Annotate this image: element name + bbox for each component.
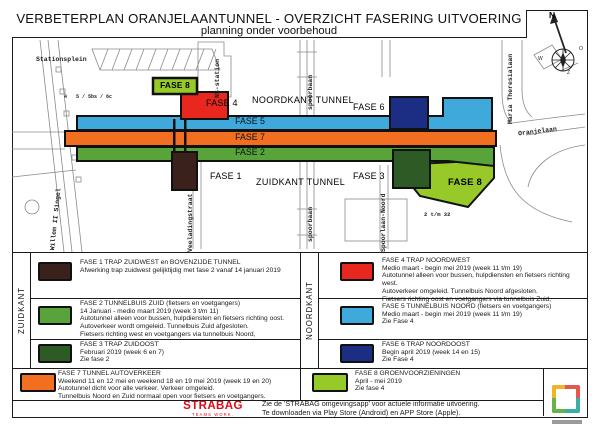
- legend-title-fase7: FASE 7 TUNNEL AUTOVERKEER: [58, 370, 298, 378]
- map-label-fase6: FASE 6: [353, 102, 385, 112]
- grid-line: [318, 252, 319, 368]
- legend-title-fase3: FASE 3 TRAP ZUIDOOST: [80, 341, 296, 349]
- strabag-logo: STRABAG TEAMS WORK.: [176, 401, 250, 417]
- legend-swatch-fase2: [38, 306, 72, 325]
- map-label-fase8-zuid: FASE 8: [448, 177, 482, 188]
- street-label-maria-theresialaan: Maria Theresialaan: [507, 54, 514, 124]
- map-label-fase7: FASE 7: [180, 132, 320, 142]
- scan-artifact-bar: [552, 420, 582, 424]
- legend-entry-fase5: FASE 5 TUNNELBUIS NOORD (fietsers en voe…: [382, 303, 584, 326]
- legend-title-fase6: FASE 6 TRAP NOORDOOST: [382, 341, 584, 349]
- legend-swatch-fase3: [38, 344, 72, 363]
- legend-entry-fase1: FASE 1 TRAP ZUIDWEST en BOVENZIJDE TUNNE…: [80, 259, 296, 274]
- page-title: VERBETERPLAN ORANJELAANTUNNEL - OVERZICH…: [12, 10, 526, 26]
- legend-desc-fase8: April - mei 2019 Zie fase 4: [355, 378, 540, 393]
- compass-west-label: W: [538, 56, 543, 62]
- legend-swatch-fase5: [340, 306, 374, 325]
- street-label-ns-station: NS-station: [214, 59, 221, 98]
- strabag-brand-name: STRABAG: [176, 401, 250, 412]
- grid-line: [300, 252, 301, 400]
- municipality-logo-icon: [552, 385, 580, 413]
- fase1-area: [172, 152, 197, 190]
- grid-line: [30, 252, 31, 368]
- legend-group-noordkant: NOORDKANT: [300, 252, 318, 368]
- legend-entry-fase6: FASE 6 TRAP NOORDOOST Begin april 2019 (…: [382, 341, 584, 364]
- page: VERBETERPLAN ORANJELAANTUNNEL - OVERZICH…: [0, 0, 600, 428]
- map-label-fase4: FASE 4: [206, 98, 238, 108]
- legend-desc-fase5: Medio maart - begin mei 2019 (week 11 t/…: [382, 311, 584, 326]
- legend-swatch-fase1: [38, 262, 72, 281]
- legend-entry-fase2: FASE 2 TUNNELBUIS ZUID (fietsers en voet…: [80, 300, 296, 339]
- street-label-veeladingstraat: Veeladingstraat: [187, 193, 194, 252]
- street-label-spoorlaan-noord: Spoorlaan-Noord: [380, 193, 387, 252]
- legend-swatch-fase6: [340, 344, 374, 363]
- grid-line: [12, 400, 543, 401]
- legend-title-fase8: FASE 8 GROENVOORZIENINGEN: [355, 370, 540, 378]
- grid-line: [30, 339, 300, 340]
- legend-group-zuidkant-label: ZUIDKANT: [17, 287, 26, 334]
- legend-entry-fase7: FASE 7 TUNNEL AUTOVERKEER Weekend 11 en …: [58, 370, 298, 401]
- legend-title-fase1: FASE 1 TRAP ZUIDWEST en BOVENZIJDE TUNNE…: [80, 259, 296, 267]
- tunnel-wall-line: [173, 119, 176, 152]
- logo-bracket-bottom-right: [565, 398, 580, 413]
- housenumber-label: 5 / 5bs / 6c: [76, 94, 112, 100]
- legend-desc-fase7: Weekend 11 en 12 mei en weekend 18 en 19…: [58, 378, 298, 401]
- legend-entry-fase3: FASE 3 TRAP ZUIDOOST Februari 2019 (week…: [80, 341, 296, 364]
- housenumber-label: 2 t/m 32: [424, 211, 450, 218]
- area-label-noordkant-tunnel: NOORDKANT TUNNEL: [252, 95, 354, 105]
- map-label-fase5: FASE 5: [180, 116, 320, 126]
- title-box: VERBETERPLAN ORANJELAANTUNNEL - OVERZICH…: [12, 10, 527, 38]
- legend-group-noordkant-label: NOORDKANT: [305, 281, 314, 340]
- legend-desc-fase1: Afwerking trap zuidwest gelijktijdig met…: [80, 267, 296, 275]
- legend-group-zuidkant: ZUIDKANT: [12, 252, 30, 368]
- compass-east-label: O: [579, 46, 583, 52]
- legend-desc-fase6: Begin april 2019 (week 14 en 15) Zie Fas…: [382, 349, 584, 364]
- map-label-fase3: FASE 3: [353, 171, 385, 181]
- legend-entry-fase4: FASE 4 TRAP NOORDWEST Medio maart - begi…: [382, 257, 584, 303]
- grid-line: [318, 339, 588, 340]
- legend-swatch-fase4: [340, 262, 374, 281]
- map-base-drawing: [12, 37, 588, 252]
- street-label-spoorbaan-zuid: spoorbaan: [307, 207, 314, 242]
- grid-line: [30, 298, 300, 299]
- strabag-brand-tagline: TEAMS WORK.: [176, 412, 250, 417]
- fase3-area: [393, 150, 430, 188]
- grid-line: [543, 368, 544, 416]
- legend-desc-fase2: 14 Januari - medio maart 2019 (week 3 t/…: [80, 308, 296, 339]
- area-label-zuidkant-tunnel: ZUIDKANT TUNNEL: [256, 177, 345, 187]
- legend-title-fase2: FASE 2 TUNNELBUIS ZUID (fietsers en voet…: [80, 300, 296, 308]
- housenumber-label: 4: [64, 94, 67, 100]
- fase6-area: [390, 97, 428, 129]
- legend-swatch-fase7: [20, 373, 56, 392]
- legend-title-fase5: FASE 5 TUNNELBUIS NOORD (fietsers en voe…: [382, 303, 584, 311]
- compass-north-label: N: [549, 10, 555, 20]
- map-label-fase1: FASE 1: [210, 171, 242, 181]
- compass-south-label: Z: [567, 70, 570, 76]
- map-label-fase2: FASE 2: [180, 147, 320, 157]
- grid-line: [318, 298, 588, 299]
- legend-entry-fase8: FASE 8 GROENVOORZIENINGEN April - mei 20…: [355, 370, 540, 393]
- map-label-fase8-noord: FASE 8: [153, 80, 197, 90]
- street-label-stationsplein: Stationsplein: [36, 56, 87, 63]
- legend-title-fase4: FASE 4 TRAP NOORDWEST: [382, 257, 584, 265]
- legend-desc-fase3: Februari 2019 (week 6 en 7) Zie fase 2: [80, 349, 296, 364]
- footer-app-note: Zie de 'STRABAG omgevingsapp' voor actue…: [262, 400, 480, 417]
- legend-swatch-fase8: [312, 373, 348, 392]
- compass-rose-icon: [527, 8, 589, 80]
- page-subtitle: planning onder voorbehoud: [12, 26, 526, 37]
